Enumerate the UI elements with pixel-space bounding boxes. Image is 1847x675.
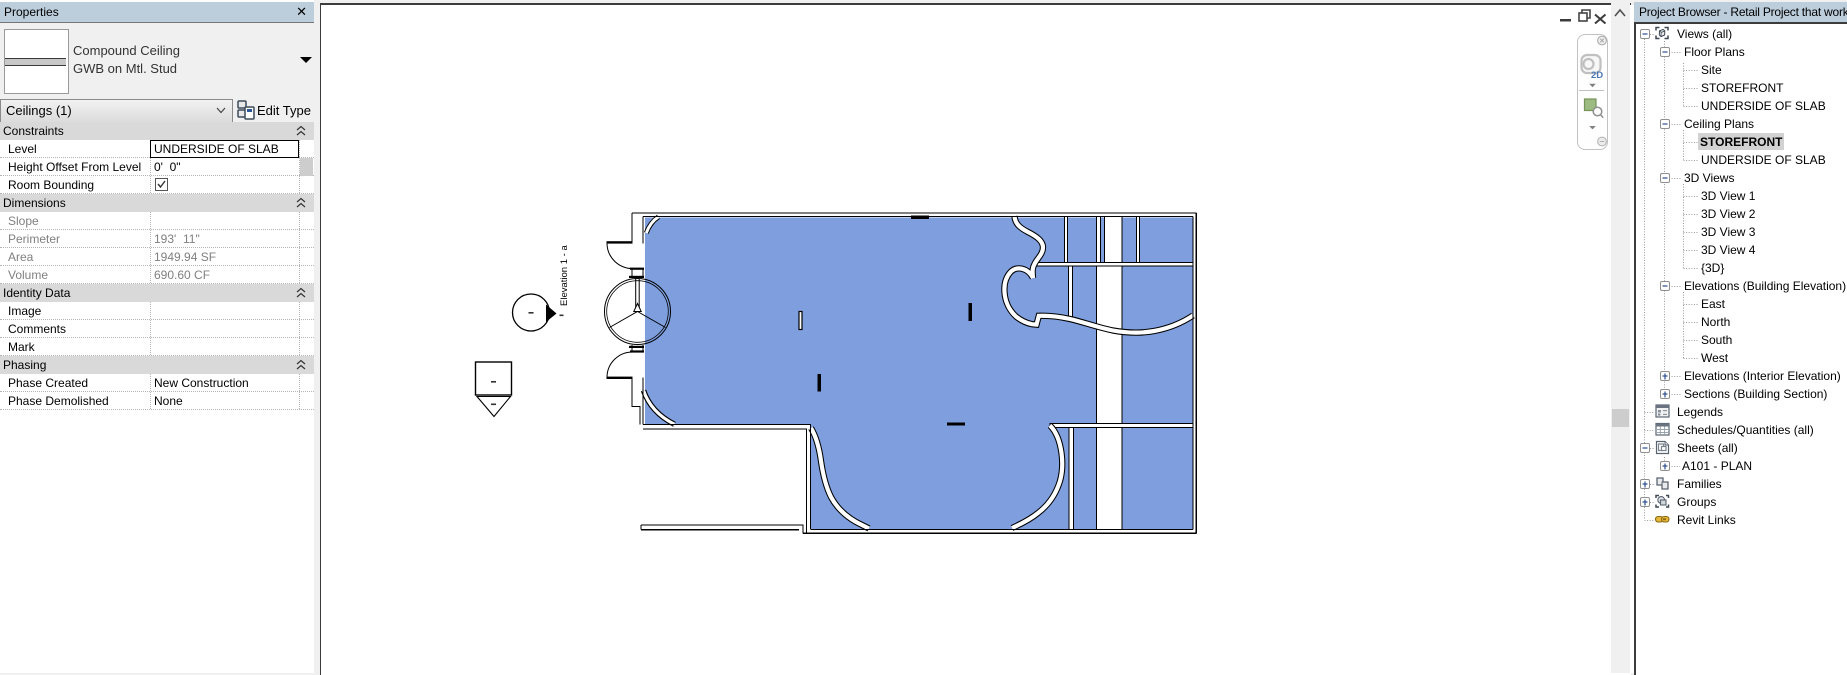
svg-text:2D: 2D xyxy=(1591,70,1603,81)
svg-text:Elevation 1 - a: Elevation 1 - a xyxy=(559,245,570,306)
